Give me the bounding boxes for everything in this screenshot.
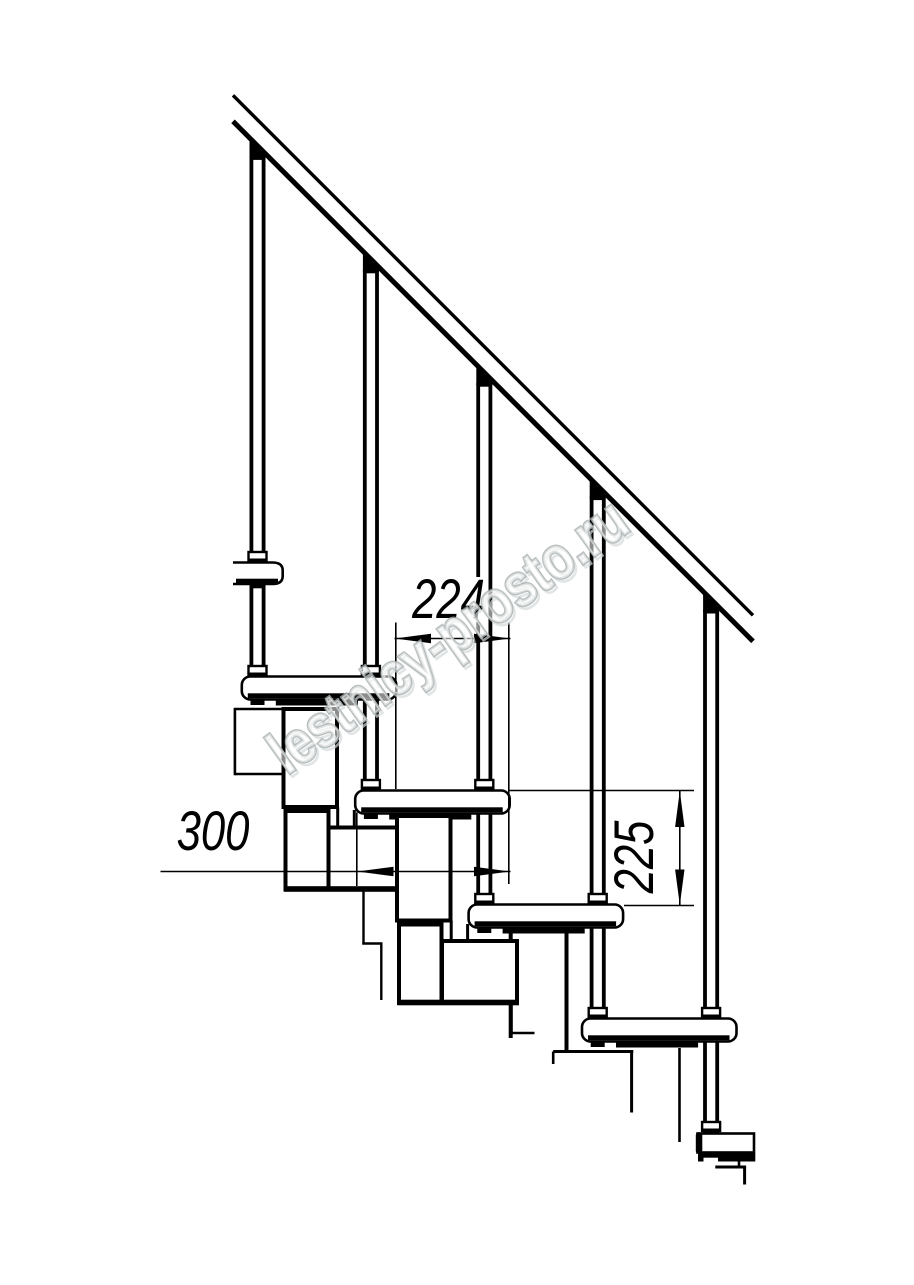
svg-text:225: 225 [603,820,665,895]
svg-text:300: 300 [177,800,250,862]
